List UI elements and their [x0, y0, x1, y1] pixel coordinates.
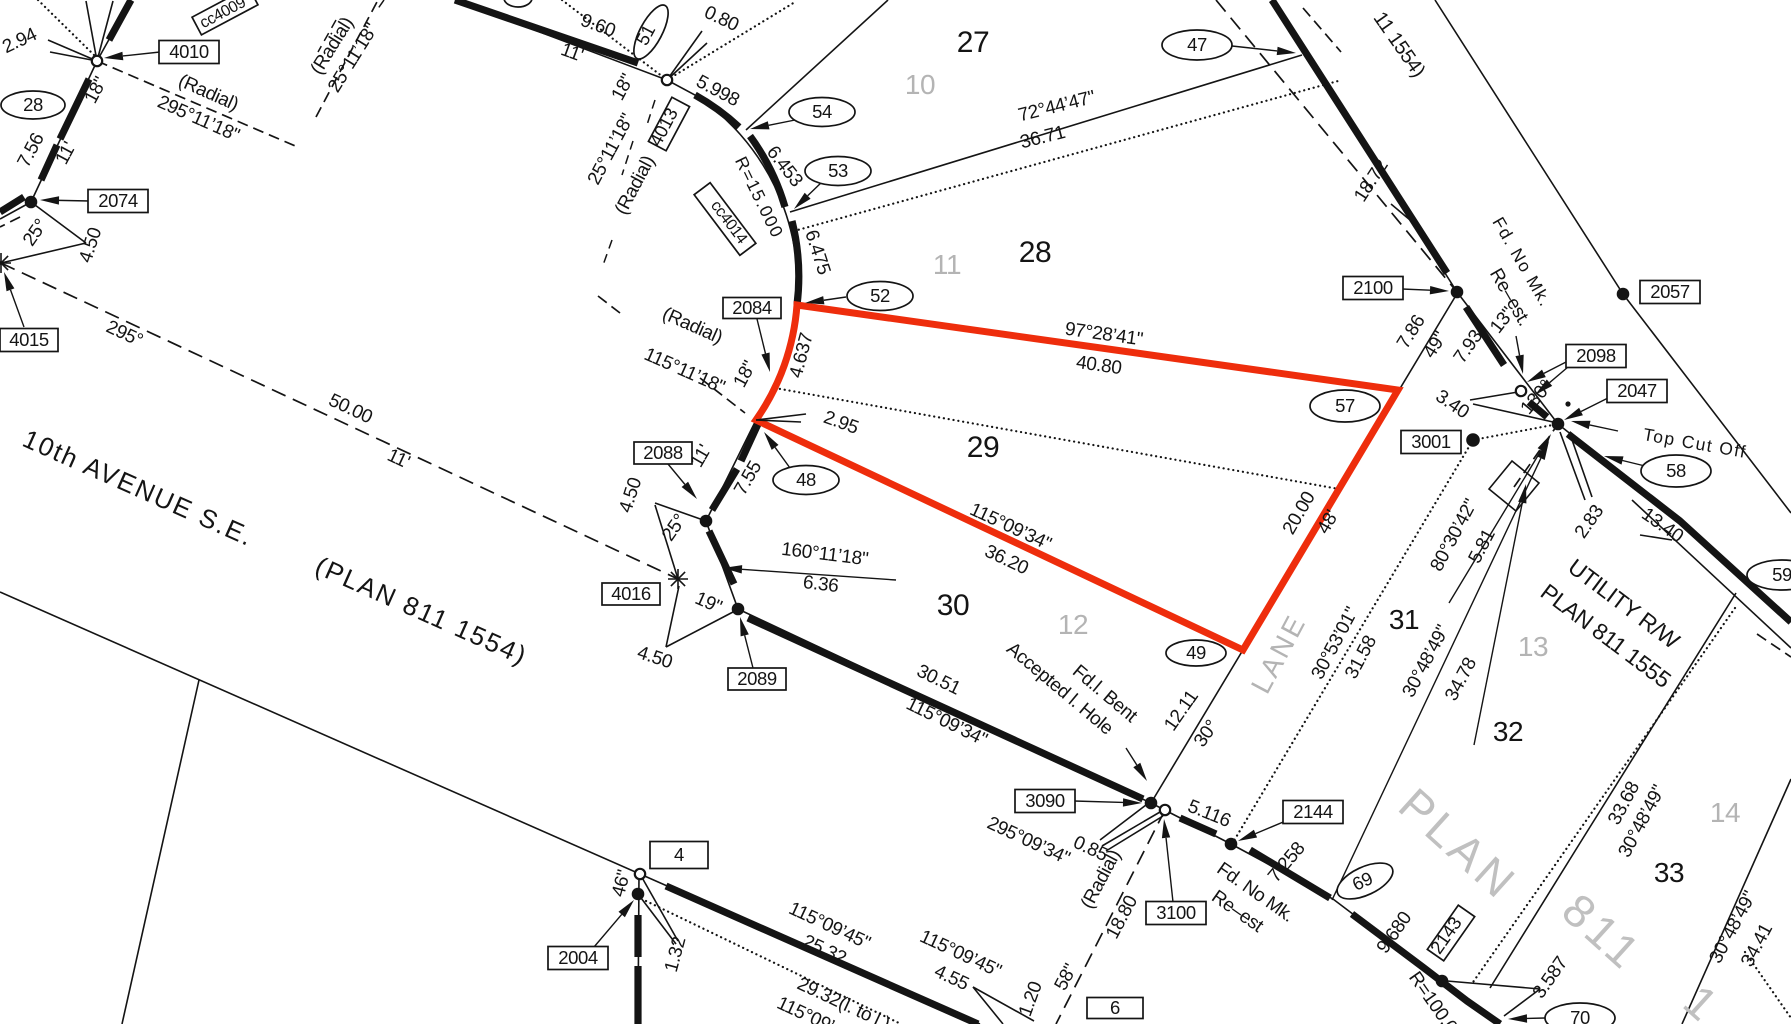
- svg-text:28: 28: [1019, 236, 1052, 269]
- svg-text:4015: 4015: [9, 329, 49, 350]
- svg-text:28: 28: [23, 94, 43, 115]
- svg-text:2057: 2057: [1650, 281, 1690, 302]
- svg-text:2089: 2089: [737, 668, 777, 689]
- svg-text:6: 6: [1110, 997, 1120, 1018]
- svg-text:12: 12: [1058, 609, 1088, 640]
- svg-text:2144: 2144: [1293, 801, 1333, 822]
- svg-text:48: 48: [796, 469, 816, 490]
- svg-text:2098: 2098: [1576, 345, 1616, 366]
- svg-text:4016: 4016: [611, 583, 651, 604]
- svg-text:54: 54: [812, 101, 832, 122]
- svg-text:2074: 2074: [98, 190, 138, 211]
- svg-text:52: 52: [870, 285, 890, 306]
- svg-text:2047: 2047: [1617, 380, 1657, 401]
- svg-text:10: 10: [905, 69, 935, 100]
- svg-text:27: 27: [957, 26, 990, 59]
- svg-text:11: 11: [933, 249, 961, 280]
- svg-text:32: 32: [1493, 716, 1523, 747]
- svg-text:3100: 3100: [1156, 902, 1196, 923]
- svg-text:31: 31: [1389, 604, 1419, 635]
- svg-text:4010: 4010: [169, 41, 209, 62]
- svg-text:13: 13: [1518, 631, 1548, 662]
- svg-text:47: 47: [1187, 34, 1207, 55]
- svg-text:58: 58: [1666, 460, 1686, 481]
- svg-text:2088: 2088: [643, 442, 683, 463]
- svg-text:2084: 2084: [732, 297, 772, 318]
- svg-text:2004: 2004: [558, 947, 598, 968]
- svg-text:4: 4: [674, 844, 684, 865]
- svg-text:30: 30: [937, 589, 970, 622]
- svg-text:6.36: 6.36: [802, 572, 840, 597]
- svg-text:3090: 3090: [1025, 790, 1065, 811]
- svg-text:2100: 2100: [1353, 277, 1393, 298]
- svg-text:59: 59: [1772, 564, 1791, 585]
- svg-text:33: 33: [1654, 857, 1684, 888]
- svg-text:70: 70: [1570, 1007, 1590, 1024]
- svg-text:53: 53: [828, 160, 848, 181]
- svg-text:14: 14: [1710, 797, 1740, 828]
- svg-text:49: 49: [1186, 642, 1206, 663]
- svg-text:29: 29: [967, 431, 1000, 464]
- svg-text:3001: 3001: [1411, 431, 1451, 452]
- svg-text:57: 57: [1335, 395, 1355, 416]
